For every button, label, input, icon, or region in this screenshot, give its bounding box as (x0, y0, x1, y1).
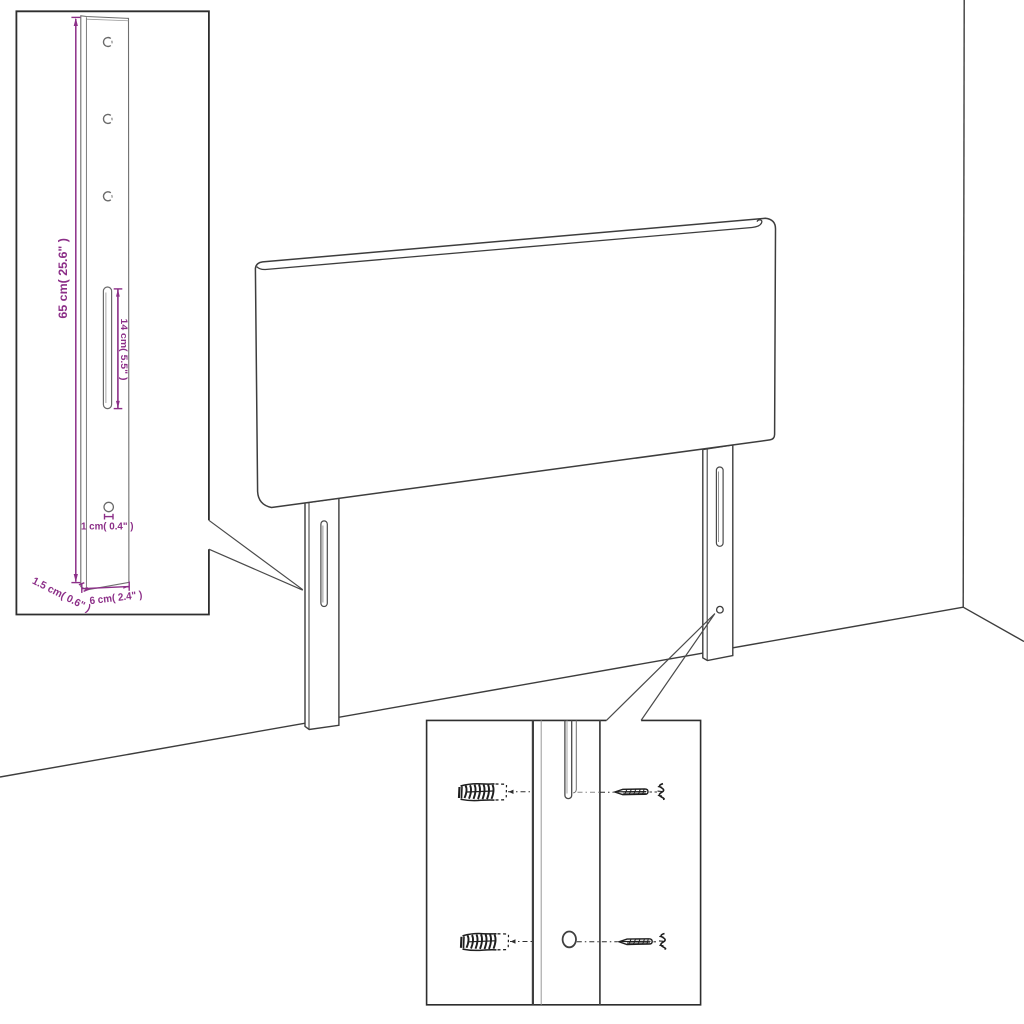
svg-text:6 cm( 2.4" ): 6 cm( 2.4" ) (89, 589, 143, 607)
svg-text:65 cm( 25.6" ): 65 cm( 25.6" ) (56, 238, 70, 319)
svg-text:1 cm( 0.4" ): 1 cm( 0.4" ) (81, 521, 134, 533)
svg-text:1.5 cm( 0.6" ): 1.5 cm( 0.6" ) (30, 575, 92, 615)
svg-text:14 cm( 5.5" ): 14 cm( 5.5" ) (118, 319, 129, 381)
